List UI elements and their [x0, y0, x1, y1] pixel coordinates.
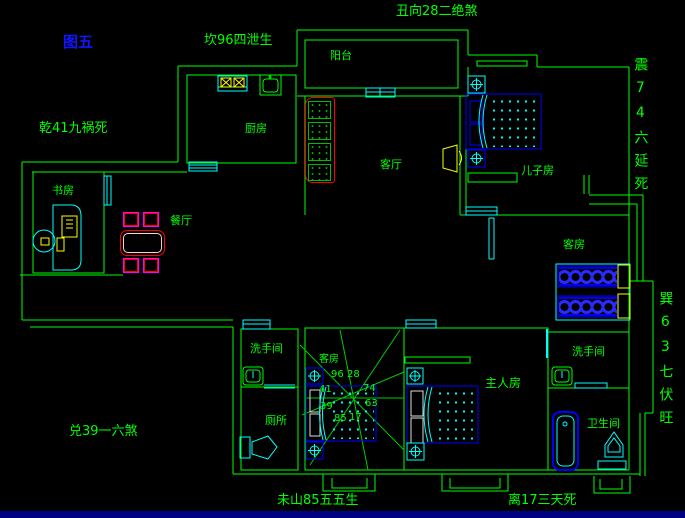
- guest-bed-pattern: [559, 297, 617, 316]
- room-label-toilet-left: 厕所: [265, 415, 287, 427]
- room-label-balcony: 阳台: [330, 50, 352, 62]
- sofa-cushion: [308, 164, 331, 181]
- fengshui-top-annotation: 丑向28二绝煞: [396, 5, 478, 19]
- room-label-guest-middle: 客房: [319, 354, 339, 365]
- master-window: [406, 320, 436, 328]
- compass-number-wsw: 39: [320, 402, 333, 412]
- toilet-left: [240, 436, 277, 459]
- guest-bed-pattern: [559, 267, 617, 286]
- window-bottom-edge: [0, 511, 685, 518]
- fengshui-wei-annotation: 未山85五五生: [277, 494, 359, 508]
- bathtub: [553, 412, 578, 470]
- stove: [218, 76, 247, 91]
- washroom-right-door: [575, 383, 607, 388]
- dining-chair: [143, 212, 159, 227]
- kitchen-sink: [260, 75, 281, 95]
- master-bed-mattress-dots: [436, 389, 476, 441]
- fengshui-dui-annotation: 兑39一六煞: [69, 425, 138, 439]
- compass-number-ne: 28: [347, 370, 360, 380]
- fengshui-zhen-annotation: 震74六延死: [632, 57, 647, 199]
- tv: [443, 145, 462, 172]
- study-desk: [33, 205, 81, 270]
- room-label-bathroom-right: 卫生间: [587, 418, 620, 430]
- washroom-right-sink: [552, 367, 572, 385]
- room-label-dining: 餐厅: [170, 215, 192, 227]
- fengshui-qian-annotation: 乾41九祸死: [39, 122, 108, 136]
- son-bed-mattress-dots: [490, 97, 539, 147]
- fengshui-kan-annotation: 坎96四泄生: [204, 34, 273, 48]
- compass-number-ese: 63: [365, 399, 378, 409]
- sofa-cushion: [308, 101, 331, 119]
- dining-table: [120, 230, 165, 256]
- room-label-son-room: 儿子房: [521, 165, 554, 177]
- toilet-right: [598, 432, 626, 469]
- dining-chair: [123, 212, 139, 227]
- hallway-door: [489, 218, 494, 259]
- washroom-left-sink: [243, 367, 263, 385]
- sofa-cushion: [308, 122, 331, 140]
- washroom-left-window: [243, 320, 270, 329]
- cad-floorplan-canvas: 图五 丑向28二绝煞 坎96四泄生 乾41九祸死 兑39一六煞 未山85五五生 …: [0, 0, 685, 518]
- compass-number-nw: 96: [331, 370, 344, 380]
- compass-number-se: 17: [349, 413, 362, 423]
- room-label-washroom-right: 洗手间: [572, 346, 605, 358]
- fengshui-li-annotation: 离17三天死: [508, 494, 577, 508]
- dining-chair: [123, 258, 139, 273]
- son-room-window: [466, 207, 497, 215]
- fengshui-xun-annotation: 巽63七伏旺: [657, 291, 672, 433]
- room-label-master: 主人房: [485, 377, 521, 390]
- compass-number-w: 41: [319, 385, 332, 395]
- compass-number-sw: 85: [334, 414, 347, 424]
- room-label-study: 书房: [52, 185, 74, 197]
- room-label-guest-right: 客房: [563, 239, 585, 251]
- study-window: [104, 176, 111, 205]
- room-label-living: 客厅: [380, 159, 402, 171]
- figure-label: 图五: [63, 34, 93, 51]
- floorplan-drawing: [0, 0, 685, 518]
- dining-chair: [143, 258, 159, 273]
- room-label-washroom-left: 洗手间: [250, 343, 283, 355]
- sofa-cushion: [308, 143, 331, 161]
- compass-number-e: 74: [363, 384, 376, 394]
- room-label-kitchen: 厨房: [245, 123, 267, 135]
